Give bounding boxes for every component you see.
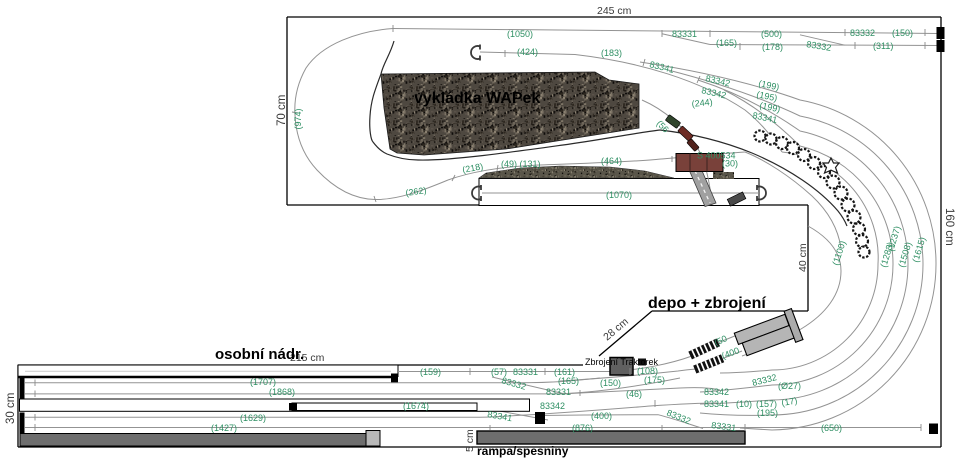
svg-text:83342: 83342	[704, 387, 729, 397]
svg-text:(424): (424)	[517, 47, 538, 57]
svg-text:83331: 83331	[672, 29, 697, 39]
svg-text:83331: 83331	[513, 367, 538, 377]
svg-text:(150): (150)	[600, 378, 621, 388]
svg-text:83341: 83341	[704, 399, 729, 409]
svg-text:(178): (178)	[762, 42, 783, 52]
svg-text:(195): (195)	[757, 408, 778, 418]
svg-text:(500): (500)	[761, 29, 782, 39]
svg-text:(1707): (1707)	[250, 377, 276, 387]
svg-text:(1868): (1868)	[269, 387, 295, 397]
svg-text:5 cm: 5 cm	[464, 429, 476, 452]
svg-text:vykládka WAPek: vykládka WAPek	[414, 90, 540, 107]
svg-text:83342: 83342	[540, 401, 565, 411]
svg-text:(650): (650)	[821, 423, 842, 433]
svg-text:(1629): (1629)	[240, 413, 266, 423]
svg-text:(10): (10)	[736, 399, 752, 409]
svg-text:(183): (183)	[601, 48, 622, 58]
svg-text:(1050): (1050)	[507, 29, 533, 39]
svg-text:70 cm: 70 cm	[276, 95, 288, 126]
svg-text:(974): (974)	[293, 108, 303, 129]
svg-text:rampa/spesniny: rampa/spesniny	[477, 444, 569, 458]
svg-text:(49) (131): (49) (131)	[501, 159, 541, 169]
svg-text:83332: 83332	[850, 28, 875, 38]
svg-text:(159): (159)	[420, 367, 441, 377]
svg-text:(165): (165)	[558, 376, 579, 386]
svg-text:(46): (46)	[626, 389, 642, 399]
svg-text:(311): (311)	[873, 41, 893, 51]
svg-text:depo + zbrojení: depo + zbrojení	[648, 295, 766, 312]
svg-text:Zbrojení Traktorek: Zbrojení Traktorek	[585, 357, 659, 367]
svg-text:160 cm: 160 cm	[943, 208, 955, 246]
svg-text:(1674): (1674)	[403, 401, 429, 411]
svg-text:(165): (165)	[716, 38, 737, 48]
svg-text:(1427): (1427)	[211, 423, 237, 433]
svg-text:(175): (175)	[644, 375, 665, 385]
svg-text:245 cm: 245 cm	[597, 5, 632, 17]
svg-text:(1070): (1070)	[606, 190, 632, 200]
svg-text:(464): (464)	[601, 156, 622, 166]
svg-text:83331: 83331	[546, 387, 571, 397]
svg-text:osobní nádr.: osobní nádr.	[215, 346, 304, 363]
svg-text:30 cm: 30 cm	[5, 393, 17, 424]
svg-text:40 cm: 40 cm	[797, 243, 809, 272]
svg-text:(876): (876)	[572, 423, 593, 433]
svg-text:(150): (150)	[892, 28, 913, 38]
svg-text:(400): (400)	[591, 411, 612, 421]
svg-text:(Ø27): (Ø27)	[778, 381, 801, 391]
svg-text:(30): (30)	[722, 159, 738, 169]
